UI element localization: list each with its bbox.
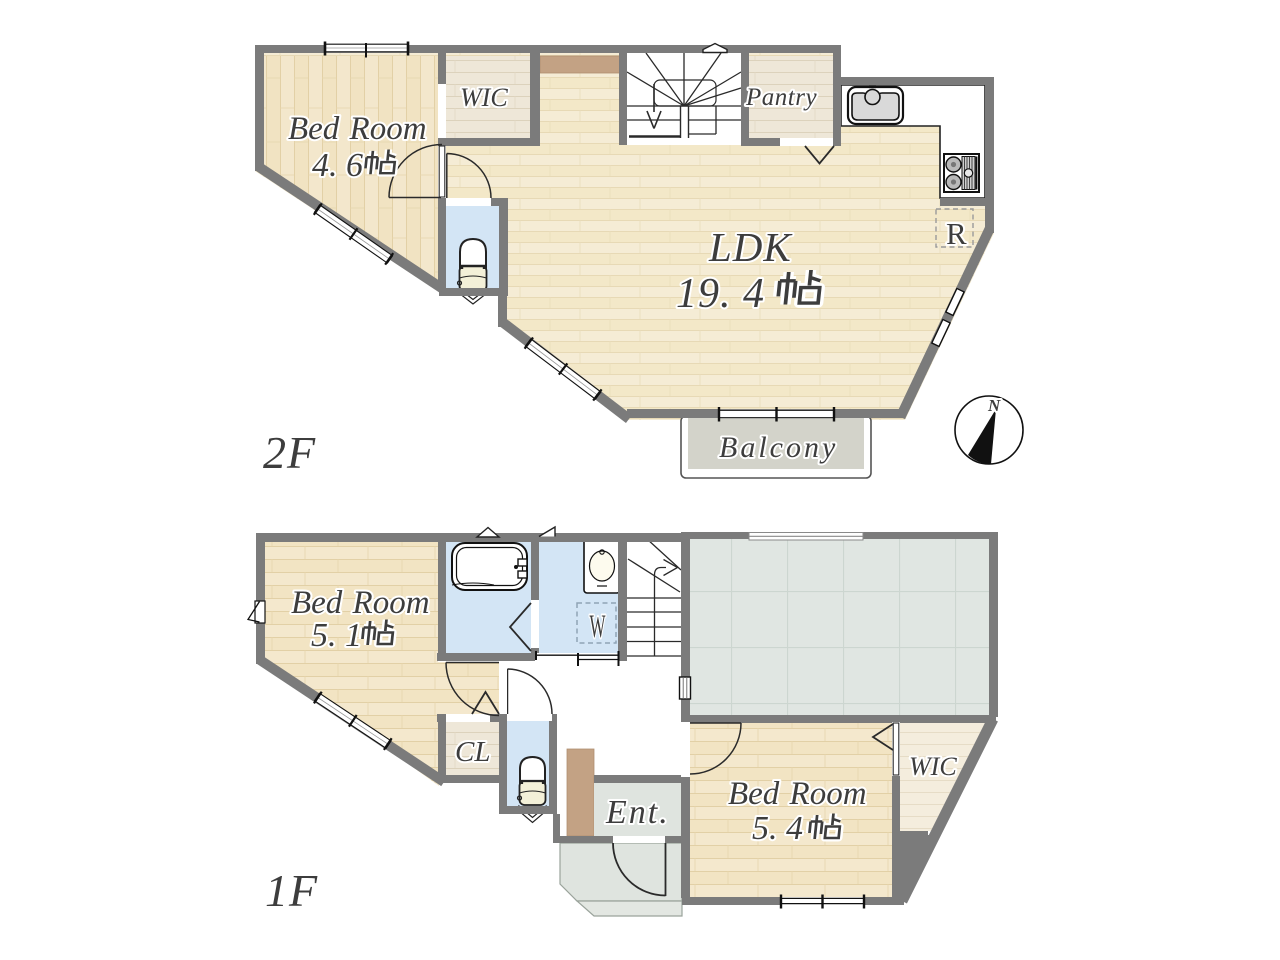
svg-text:4. 6: 4. 6: [312, 147, 363, 184]
svg-text:N: N: [987, 396, 1001, 415]
svg-text:Ent.: Ent.: [605, 794, 670, 831]
svg-text:W: W: [590, 609, 606, 645]
svg-text:LDK: LDK: [708, 224, 793, 270]
svg-text:5. 1: 5. 1: [311, 617, 362, 654]
svg-text:Bed Room: Bed Room: [291, 585, 430, 621]
svg-text:Bed Room: Bed Room: [288, 111, 427, 147]
svg-text:CL: CL: [455, 736, 490, 768]
svg-text:2F: 2F: [263, 427, 316, 478]
svg-text:Balcony: Balcony: [719, 431, 838, 464]
svg-text:WIC: WIC: [460, 83, 508, 112]
svg-text:Pantry: Pantry: [745, 84, 817, 111]
svg-text:5. 4: 5. 4: [752, 810, 803, 847]
svg-text:WIC: WIC: [909, 752, 957, 781]
svg-text:1F: 1F: [265, 865, 318, 916]
svg-text:R: R: [946, 216, 967, 251]
svg-text:19. 4: 19. 4: [676, 271, 765, 317]
svg-text:Bed Room: Bed Room: [728, 776, 867, 812]
